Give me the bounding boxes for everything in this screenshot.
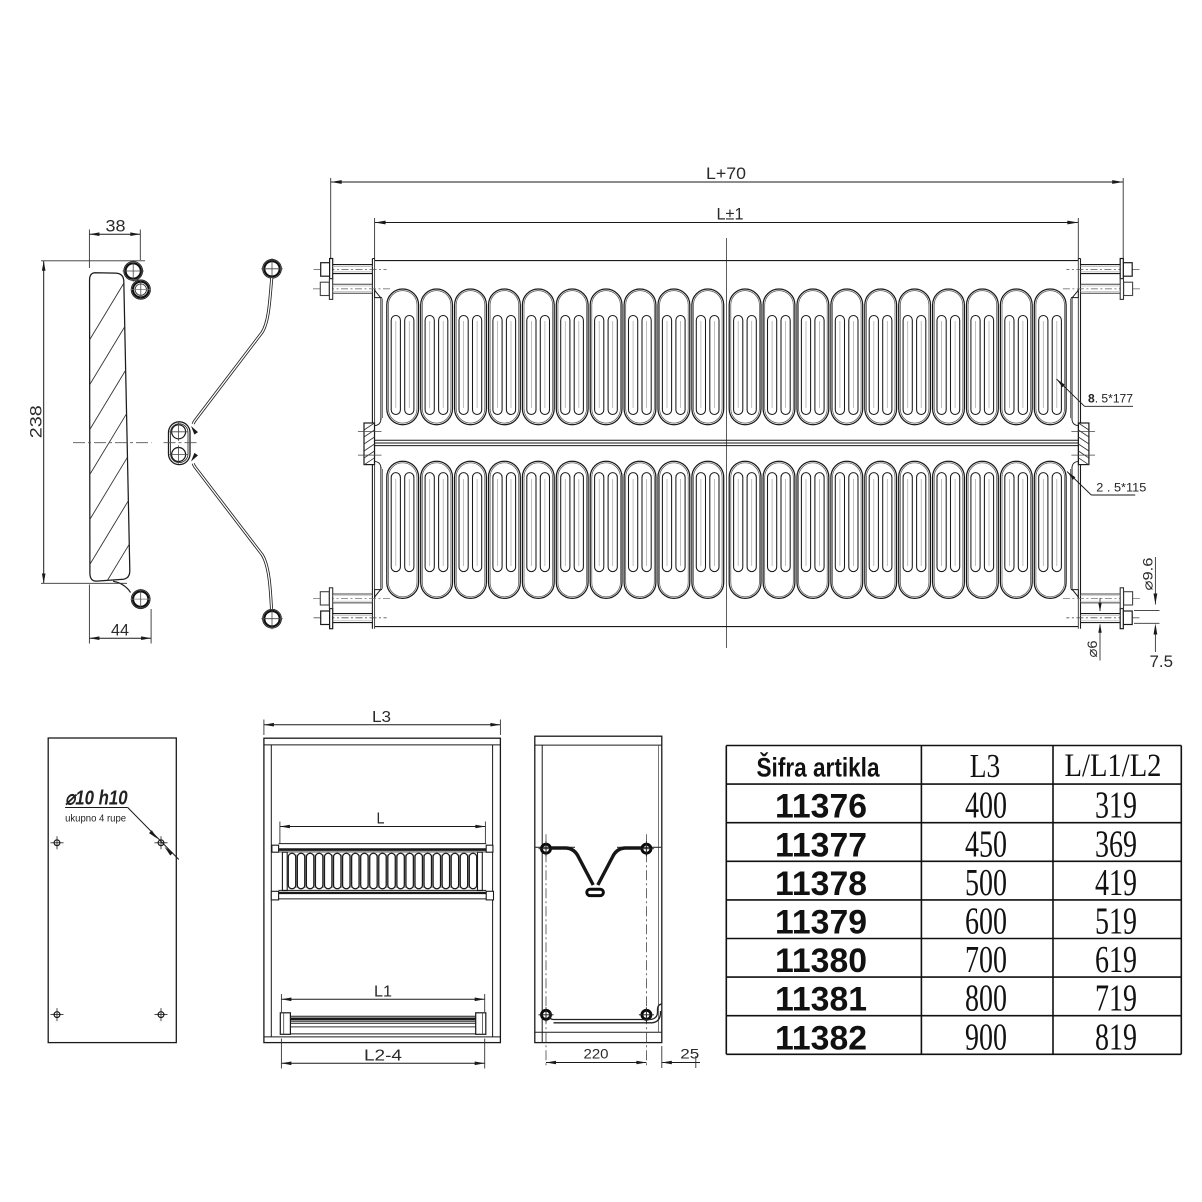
- svg-text:L±1: L±1: [717, 206, 744, 224]
- svg-text:238: 238: [28, 405, 46, 438]
- svg-text:L1: L1: [374, 984, 392, 1001]
- svg-text:L+70: L+70: [706, 165, 746, 183]
- svg-text:L3: L3: [970, 748, 1001, 785]
- svg-text:819: 819: [1095, 1016, 1137, 1058]
- svg-text:⌀10 h10: ⌀10 h10: [65, 788, 128, 810]
- svg-text:220: 220: [584, 1046, 609, 1062]
- svg-text:11382: 11382: [775, 1019, 867, 1057]
- svg-text:700: 700: [965, 939, 1007, 981]
- svg-text:369: 369: [1095, 823, 1137, 865]
- svg-text:900: 900: [965, 1016, 1007, 1058]
- svg-text:38: 38: [106, 218, 126, 236]
- svg-text:ukupno 4 rupe: ukupno 4 rupe: [65, 813, 127, 824]
- svg-text:600: 600: [965, 901, 1007, 943]
- svg-text:11376: 11376: [775, 788, 867, 826]
- svg-text:L2-4: L2-4: [364, 1047, 402, 1064]
- svg-text:⌀9.6: ⌀9.6: [1140, 557, 1156, 590]
- svg-text:11377: 11377: [775, 826, 867, 864]
- svg-text:419: 419: [1095, 862, 1137, 904]
- svg-text:25: 25: [680, 1046, 699, 1062]
- svg-text:11380: 11380: [775, 942, 867, 980]
- svg-text:500: 500: [965, 862, 1007, 904]
- svg-text:L3: L3: [372, 709, 391, 726]
- svg-text:519: 519: [1095, 901, 1137, 943]
- svg-text:11378: 11378: [775, 865, 867, 903]
- svg-text:619: 619: [1095, 939, 1137, 981]
- svg-text:Šifra artikla: Šifra artikla: [757, 752, 881, 783]
- svg-text:719: 719: [1095, 978, 1137, 1020]
- svg-text:L: L: [377, 811, 385, 828]
- svg-text:11381: 11381: [775, 981, 867, 1019]
- svg-text:L/L1/L2: L/L1/L2: [1065, 748, 1162, 784]
- svg-text:44: 44: [111, 622, 129, 640]
- svg-text:800: 800: [965, 978, 1007, 1020]
- svg-text:319: 319: [1095, 785, 1137, 827]
- svg-text:11379: 11379: [775, 904, 867, 942]
- svg-text:8. 5*177: 8. 5*177: [1088, 394, 1133, 406]
- svg-text:400: 400: [965, 785, 1007, 827]
- svg-text:7.5: 7.5: [1150, 652, 1174, 671]
- svg-text:⌀6: ⌀6: [1084, 640, 1100, 657]
- svg-text:450: 450: [965, 823, 1007, 865]
- svg-text:2 . 5*115: 2 . 5*115: [1096, 483, 1146, 495]
